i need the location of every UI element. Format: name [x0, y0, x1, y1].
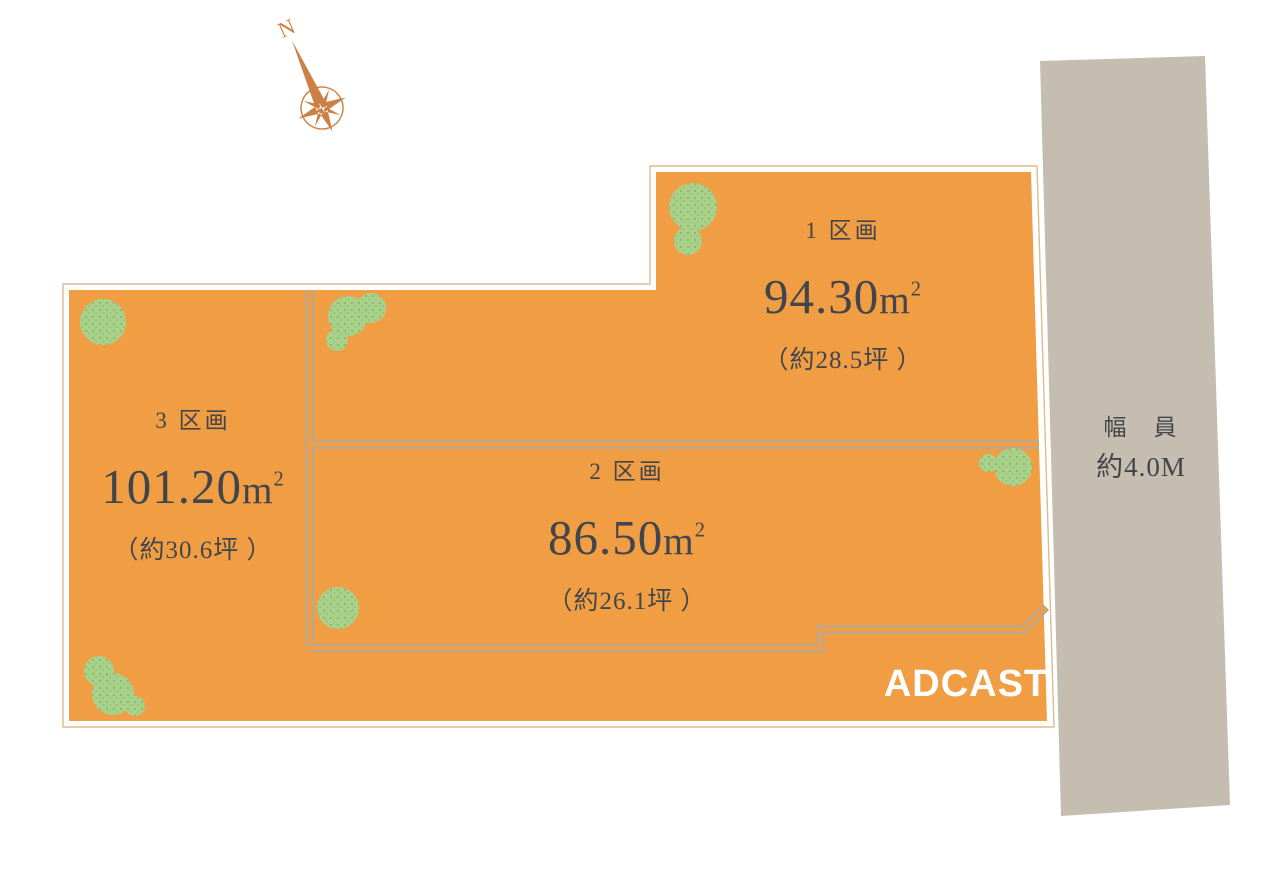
- parcel-3-area: 101.20m2: [101, 462, 285, 511]
- parcel-2-area: 86.50m2: [547, 513, 706, 562]
- parcel-2-tsubo: （約26.1坪 ）: [547, 588, 706, 617]
- tree-icon: [317, 587, 359, 629]
- parcel-3-label: 3 区画 101.20m2 （約30.6坪 ）: [101, 408, 285, 566]
- tree-icon: [80, 299, 126, 345]
- parcel-2-name: 2 区画: [547, 459, 706, 485]
- road-label: 幅 員 約4.0M: [1096, 414, 1186, 483]
- parcel-1-area: 94.30m2: [763, 272, 922, 321]
- compass-north-label: N: [274, 13, 299, 42]
- parcel-1-label: 1 区画 94.30m2 （約28.5坪 ）: [763, 218, 922, 376]
- adcast-logo: ADCAST: [884, 663, 1048, 706]
- parcel-1-name: 1 区画: [763, 218, 922, 244]
- parcel-1-tsubo: （約28.5坪 ）: [763, 347, 922, 376]
- site-plan: N 1 区画 94.30m2 （約28.5坪 ） 2 区画 86.50m2 （約…: [0, 0, 1280, 872]
- parcel-3-tsubo: （約30.6坪 ）: [101, 537, 285, 566]
- parcel-3-name: 3 区画: [101, 408, 285, 434]
- compass-icon: N: [258, 6, 357, 142]
- road-width-value: 約4.0M: [1096, 451, 1186, 483]
- road-width-caption: 幅 員: [1096, 414, 1186, 442]
- parcel-2-label: 2 区画 86.50m2 （約26.1坪 ）: [547, 459, 706, 617]
